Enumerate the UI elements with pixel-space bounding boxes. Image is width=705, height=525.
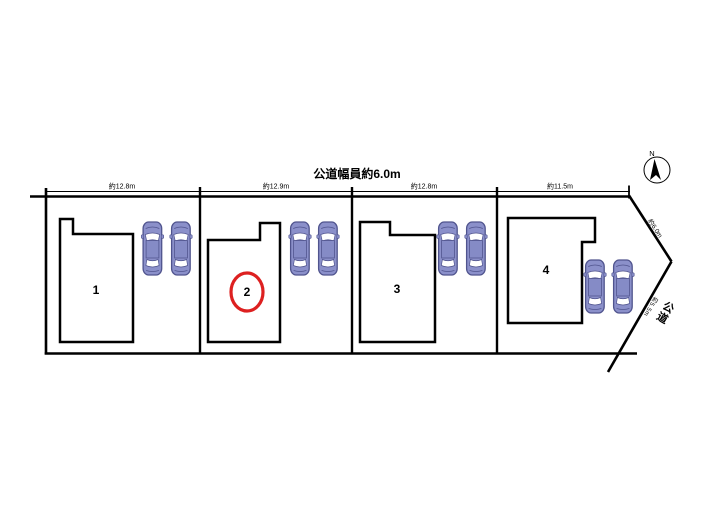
dimension-label-lot3: 約12.8m xyxy=(411,182,438,191)
compass-needle xyxy=(650,159,661,180)
site-plan-canvas: 公道幅員約6.0m 約12.8m 約12.9m 約12.8m 約11.5m xyxy=(0,0,705,525)
lot-number-4: 4 xyxy=(543,263,550,277)
car-icon xyxy=(612,260,634,313)
lot-number-3: 3 xyxy=(394,282,401,296)
compass-icon: N xyxy=(644,149,670,183)
car-icon xyxy=(289,222,311,275)
car-icon xyxy=(170,222,192,275)
car-icon xyxy=(141,222,163,275)
lot-number-2: 2 xyxy=(244,285,251,299)
lot-number-1: 1 xyxy=(93,283,100,297)
car-icon xyxy=(465,222,487,275)
dimension-label-lot1: 約12.8m xyxy=(109,182,136,191)
house-outline-lot2 xyxy=(208,223,280,342)
site-plan-drawing: 公道幅員約6.0m 約12.8m 約12.9m 約12.8m 約11.5m xyxy=(0,0,705,525)
car-icon xyxy=(317,222,339,275)
car-icon xyxy=(584,260,606,313)
house-outline-lot1 xyxy=(60,219,133,342)
compass-north-label: N xyxy=(649,149,654,158)
plan-title: 公道幅員約6.0m xyxy=(313,166,400,181)
dimension-label-lot2: 約12.9m xyxy=(263,182,290,191)
car-icon xyxy=(437,222,459,275)
dimension-label-lot4: 約11.5m xyxy=(547,182,573,191)
house-outline-lot4 xyxy=(508,218,595,323)
